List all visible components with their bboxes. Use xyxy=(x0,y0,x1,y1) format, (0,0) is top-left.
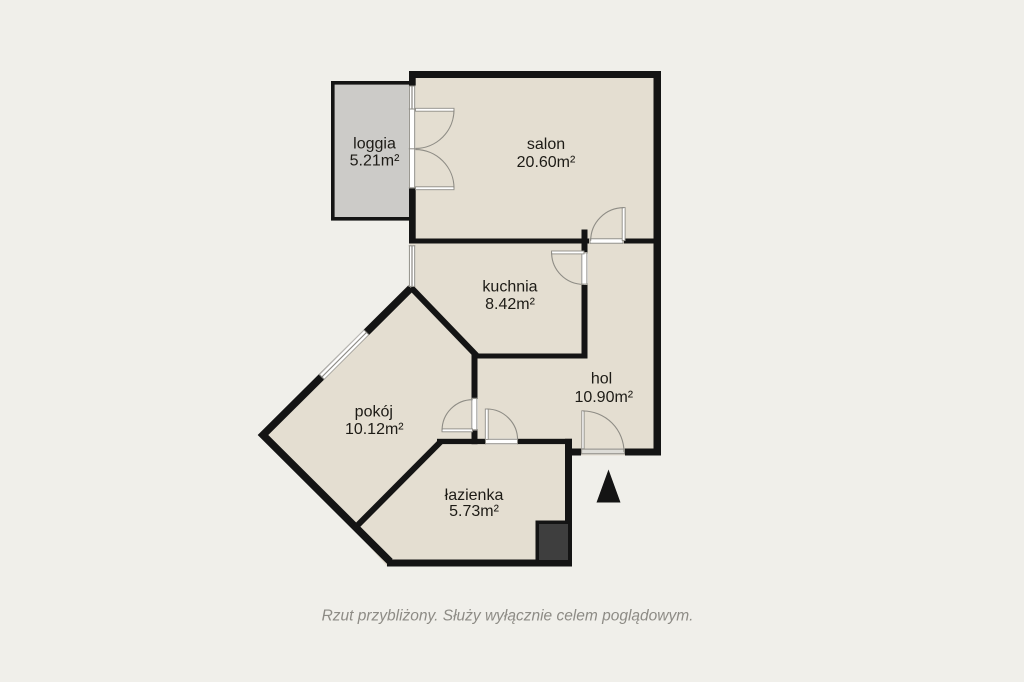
svg-text:loggia: loggia xyxy=(353,136,396,153)
svg-text:10.90m²: 10.90m² xyxy=(574,389,633,406)
svg-text:salon: salon xyxy=(527,136,565,153)
svg-text:hol: hol xyxy=(591,371,612,388)
svg-text:kuchnia: kuchnia xyxy=(482,279,537,296)
svg-text:pokój: pokój xyxy=(355,403,393,420)
svg-text:8.42m²: 8.42m² xyxy=(485,296,535,313)
svg-text:20.60m²: 20.60m² xyxy=(517,154,576,171)
svg-text:10.12m²: 10.12m² xyxy=(345,421,404,438)
svg-text:łazienka: łazienka xyxy=(445,487,504,504)
svg-text:5.21m²: 5.21m² xyxy=(350,152,400,169)
svg-text:Rzut przybliżony. Służy wyłącz: Rzut przybliżony. Służy wyłącznie celem … xyxy=(322,608,694,625)
svg-text:5.73m²: 5.73m² xyxy=(449,503,499,520)
